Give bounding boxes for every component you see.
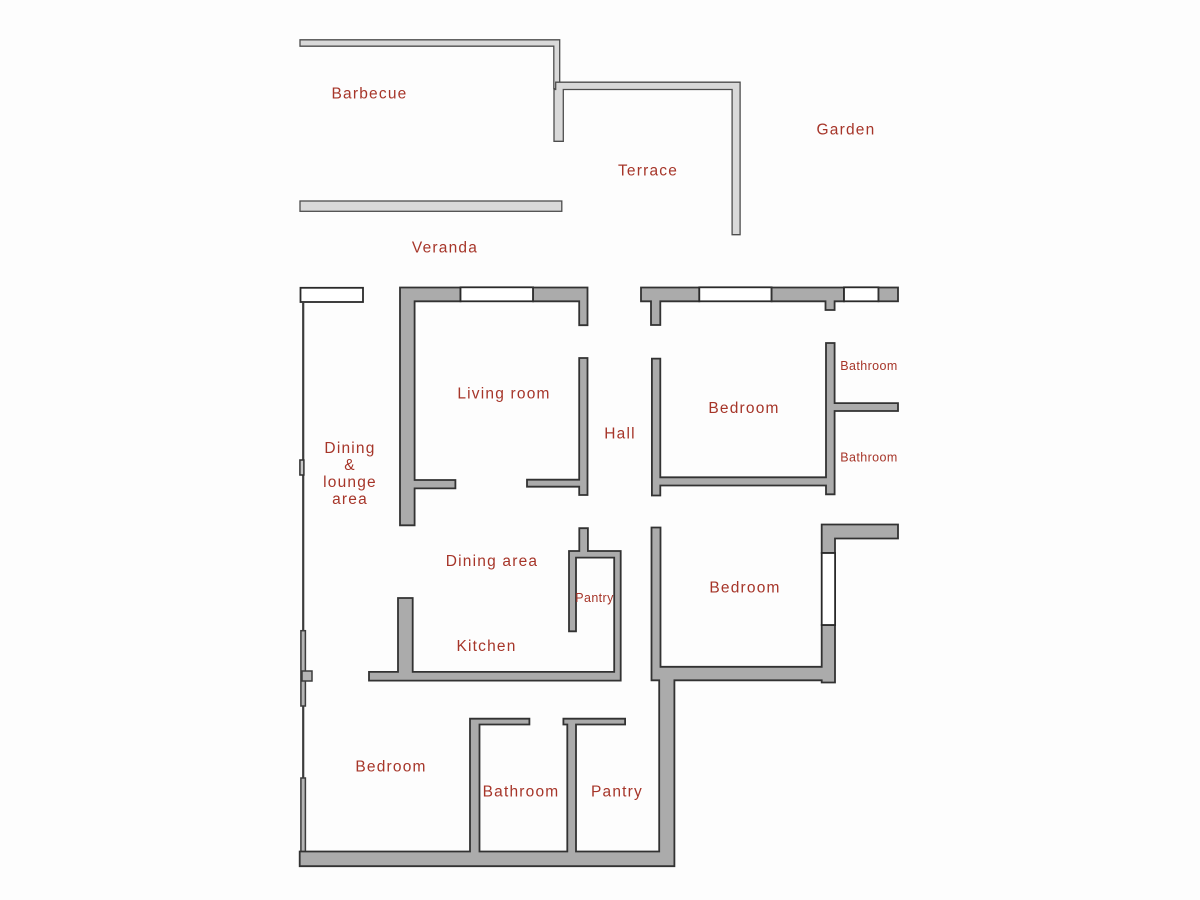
svg-text:lounge: lounge bbox=[323, 474, 377, 491]
svg-text:Veranda: Veranda bbox=[412, 240, 478, 257]
svg-text:area: area bbox=[332, 491, 368, 508]
svg-text:Pantry: Pantry bbox=[591, 784, 643, 801]
svg-text:Bedroom: Bedroom bbox=[355, 759, 426, 776]
svg-text:Barbecue: Barbecue bbox=[332, 86, 408, 103]
svg-text:Dining: Dining bbox=[324, 440, 375, 457]
svg-text:Bathroom: Bathroom bbox=[483, 784, 560, 801]
svg-text:Kitchen: Kitchen bbox=[456, 638, 516, 655]
svg-text:Bathroom: Bathroom bbox=[840, 359, 897, 373]
svg-text:Hall: Hall bbox=[604, 426, 636, 443]
svg-text:Bedroom: Bedroom bbox=[709, 580, 780, 597]
svg-text:Dining area: Dining area bbox=[446, 553, 538, 570]
svg-text:Terrace: Terrace bbox=[618, 163, 678, 180]
svg-text:Bathroom: Bathroom bbox=[840, 451, 897, 465]
svg-text:Living room: Living room bbox=[457, 386, 550, 403]
svg-text:Garden: Garden bbox=[817, 122, 876, 139]
svg-text:Pantry: Pantry bbox=[575, 591, 614, 605]
svg-text:&: & bbox=[344, 457, 356, 474]
svg-text:Bedroom: Bedroom bbox=[708, 400, 779, 417]
